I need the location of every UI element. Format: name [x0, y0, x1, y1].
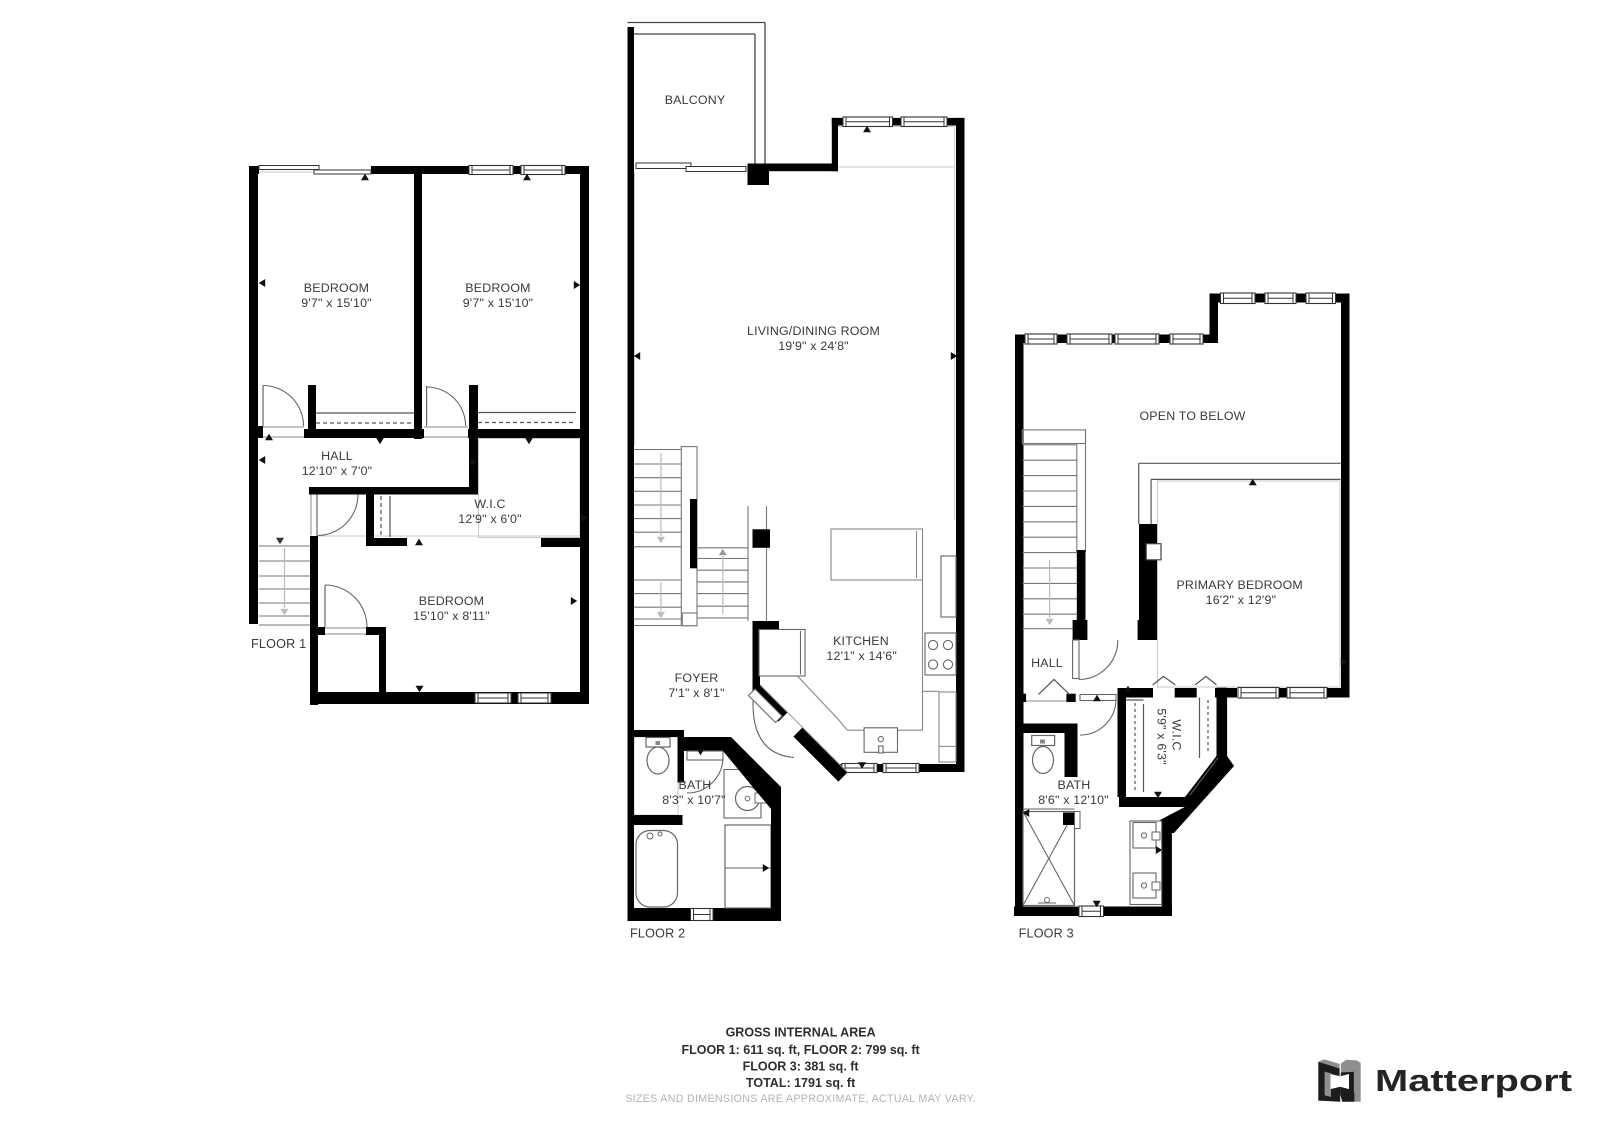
svg-text:12'10" x 7'0": 12'10" x 7'0": [302, 464, 373, 478]
svg-text:BEDROOM: BEDROOM: [465, 281, 530, 295]
svg-text:GROSS INTERNAL AREA: GROSS INTERNAL AREA: [726, 1026, 876, 1040]
svg-text:19'9" x 24'8": 19'9" x 24'8": [778, 339, 849, 353]
svg-text:5'9" x 6'3": 5'9" x 6'3": [1155, 708, 1169, 764]
svg-text:LIVING/DINING ROOM: LIVING/DINING ROOM: [747, 324, 880, 338]
svg-text:W.I.C: W.I.C: [474, 497, 505, 511]
svg-text:BATH: BATH: [1058, 778, 1091, 792]
svg-text:BEDROOM: BEDROOM: [304, 281, 369, 295]
svg-text:9'7" x 15'10": 9'7" x 15'10": [301, 296, 372, 310]
svg-text:FLOOR 3: 381 sq. ft: FLOOR 3: 381 sq. ft: [743, 1060, 860, 1074]
svg-text:7'1" x 8'1": 7'1" x 8'1": [668, 686, 724, 700]
svg-text:TOTAL: 1791 sq. ft: TOTAL: 1791 sq. ft: [746, 1076, 856, 1090]
svg-text:BEDROOM: BEDROOM: [419, 594, 484, 608]
svg-text:FOYER: FOYER: [675, 671, 719, 685]
svg-text:KITCHEN: KITCHEN: [833, 634, 889, 648]
svg-text:FLOOR 1: 611 sq. ft, FLOOR 2:: FLOOR 1: 611 sq. ft, FLOOR 2: 799 sq. ft: [681, 1043, 920, 1057]
svg-text:SIZES AND DIMENSIONS ARE APPRO: SIZES AND DIMENSIONS ARE APPROXIMATE, AC…: [625, 1093, 976, 1105]
svg-text:FLOOR 1: FLOOR 1: [251, 637, 306, 651]
svg-text:Matterport: Matterport: [1375, 1063, 1572, 1098]
svg-text:W.I.C: W.I.C: [1170, 719, 1184, 750]
svg-text:FLOOR 2: FLOOR 2: [630, 927, 685, 941]
svg-text:FLOOR 3: FLOOR 3: [1019, 927, 1074, 941]
svg-text:12'9" x 6'0": 12'9" x 6'0": [458, 512, 521, 526]
svg-text:OPEN TO BELOW: OPEN TO BELOW: [1139, 409, 1245, 423]
svg-text:PRIMARY BEDROOM: PRIMARY BEDROOM: [1176, 578, 1302, 592]
svg-text:HALL: HALL: [1031, 656, 1063, 670]
svg-text:16'2" x 12'9": 16'2" x 12'9": [1206, 593, 1277, 607]
svg-text:9'7" x 15'10": 9'7" x 15'10": [463, 296, 534, 310]
svg-text:15'10" x 8'11": 15'10" x 8'11": [413, 609, 490, 623]
svg-text:BALCONY: BALCONY: [665, 93, 726, 107]
svg-text:8'6" x 12'10": 8'6" x 12'10": [1038, 793, 1109, 807]
svg-text:BATH: BATH: [679, 778, 712, 792]
svg-text:8'3" x 10'7": 8'3" x 10'7": [662, 793, 725, 807]
svg-text:12'1" x 14'6": 12'1" x 14'6": [826, 649, 897, 663]
svg-text:HALL: HALL: [321, 449, 353, 463]
